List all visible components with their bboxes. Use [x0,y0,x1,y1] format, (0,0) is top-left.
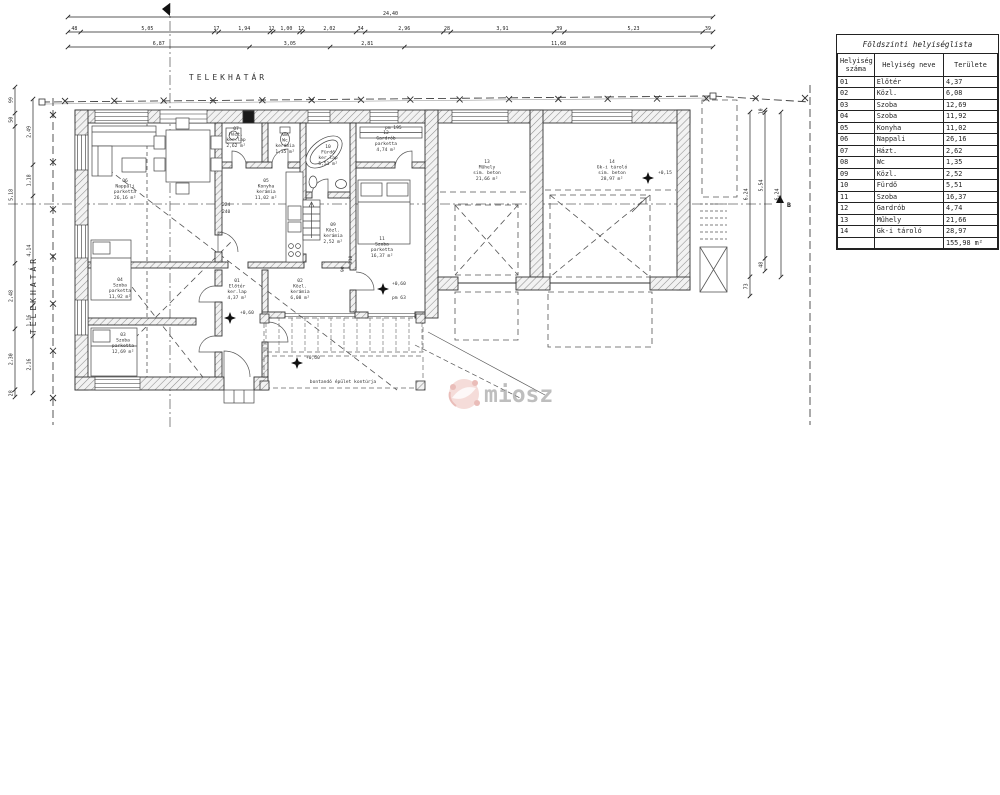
room-label-02: 02 [297,278,303,284]
table-cell: 12,69 [943,99,997,110]
table-cell: 05 [838,122,875,133]
dim-value: 1,00 [280,26,292,32]
room-label-03: 12,69 m² [112,349,134,355]
room-label-05: Konyha [258,184,275,190]
chimney [243,111,254,123]
section-flag-icon [162,3,170,16]
table-cell: Szoba [874,99,943,110]
room-label-11: 16,37 m² [371,253,393,259]
table-cell: 5,51 [943,180,997,191]
dim-pm63: pm 63 [392,295,406,301]
floorplan-sheet: TELEKHATÁR TELEKHATÁR B [0,0,1000,795]
table-row: 04Szoba11,92 [838,111,998,122]
table-cell: Közl. [874,168,943,179]
room-label-01: Előtér [229,283,246,290]
dim-value: 5,54 [759,179,765,191]
dim-value: 2,81 [361,41,373,47]
table-row: 06Nappali26,16 [838,134,998,145]
table-row: 08Wc1,35 [838,157,998,168]
dim-value: 39 [705,26,711,32]
room-label-04: parketta [109,288,131,294]
dim-value: 24,40 [383,11,398,17]
side-extension [700,100,737,292]
dim-value: 6,24 [744,188,750,200]
room-label-09: Közl. [326,228,340,234]
dim-value: 2,49 [27,126,33,138]
table-row: 05Konyha11,02 [838,122,998,133]
col-header-area: Területe [943,54,997,77]
property-boundary: TELEKHATÁR TELEKHATÁR [27,71,810,425]
room-label-06: 06 [122,178,128,184]
room-label-09: 09 [330,222,336,228]
room-label-06: parketta [114,189,136,195]
table-row: 13Műhely21,66 [838,214,998,225]
room-label-10: ker.lap [318,155,338,161]
room-label-13: 13 [484,159,490,165]
dim-value: 6,24 [775,188,781,200]
col-header-room-number: Helyiség száma [838,54,875,77]
table-cell: 6,08 [943,88,997,99]
room-label-11: Szoba [375,242,389,248]
dim-value: 5,18 [9,189,15,201]
room-label-08: 08 [282,132,288,138]
room-label-14: 28,97 m² [601,176,623,182]
table-cell: 09 [838,168,875,179]
table-cell: Házt. [874,145,943,156]
table-cell: 02 [838,88,875,99]
table-row: 09Közl.2,52 [838,168,998,179]
table-row: 10Fürdő5,51 [838,180,998,191]
room-label-13: Műhely [479,165,496,171]
table-cell: Előtér [874,77,943,88]
dim-chain-left-outer: 99505,182,482,3028 [9,85,18,399]
room-label-05: 11,02 m² [255,195,277,201]
room-label-10: 5,51 m² [318,161,337,167]
room-label-13: sim. beton [473,170,501,176]
room-table-body: 01Előtér4,3702Közl.6,0803Szoba12,6904Szo… [838,77,998,249]
stairs [303,200,320,240]
table-cell: 2,52 [943,168,997,179]
terrace-post [260,314,269,323]
terrace-post [416,381,425,390]
elevation-label-garage: +0,15 [658,170,672,176]
room-label-05: kerámia [256,188,276,195]
elevation-star-icon [642,172,654,184]
room-label-09: 2,52 m² [323,239,342,245]
room-label-12: parketta [375,141,397,147]
table-cell: 155,98 m² [943,237,997,248]
dim-value: 2,30 [9,353,15,365]
room-label-07: Házt. [229,131,243,138]
terrace-post [260,381,269,390]
table-cell: 2,62 [943,145,997,156]
room-label-06: 26,16 m² [114,195,136,201]
dim-value: 48 [759,262,765,268]
terrace-post [416,314,425,323]
dim-value: 3,91 [496,26,508,32]
room-label-11: 11 [379,236,385,242]
table-cell: Fürdő [874,180,943,191]
dim-value: 1,94 [238,26,250,32]
elevation-star-icon [291,357,303,369]
table-row: 03Szoba12,69 [838,99,998,110]
table-cell: 01 [838,77,875,88]
room-label-07: 2,62 m² [226,143,245,149]
room-label-03: parketta [112,343,134,349]
table-cell: Gk-i tároló [874,226,943,237]
dim-value: 34 [358,26,364,32]
room-label-14: sim. beton [598,170,626,176]
fence-post [710,93,716,99]
room-table-title: Földszinti helyiséglista [837,35,998,53]
room-label-05: 05 [263,178,269,184]
table-row: 02Közl.6,08 [838,88,998,99]
room-label-03: 03 [120,332,126,338]
table-cell: 07 [838,145,875,156]
dim-value: 1,16 [27,315,33,327]
room-label-14: 14 [609,159,615,165]
dim-value: 50 [9,117,15,123]
dim-value: 11,68 [551,41,566,47]
section-b-label: B [787,201,791,209]
table-cell: Nappali [874,134,943,145]
table-cell: 11,02 [943,122,997,133]
dim-value: 2,16 [27,358,33,370]
table-cell: 14 [838,226,875,237]
room-label-03: Szoba [116,338,130,344]
table-cell: 11 [838,191,875,202]
table-cell: Műhely [874,214,943,225]
table-cell: 16,37 [943,191,997,202]
table-cell: 03 [838,99,875,110]
room-label-12: Gardrób [376,135,396,142]
sofa [92,126,156,146]
dim-value: 28 [9,390,15,396]
room-label-08: kerámia [275,142,295,149]
table-cell: 10 [838,180,875,191]
dim-value: 5,23 [628,26,640,32]
dim-value: 3,05 [284,41,296,47]
elevation-label-entry: +0,60 [240,310,254,316]
dim-chain-right-3: 6,24 [775,110,784,279]
dining-table [166,130,210,182]
dim-value: 1,18 [27,174,33,186]
room-label-07: ker.lap [226,137,246,143]
telekhatar-label-top: TELEKHATÁR [189,71,267,82]
room-table-header-row: Helyiség száma Helyiség neve Területe [838,54,998,77]
table-cell: Wc [874,157,943,168]
table-cell [838,237,875,248]
demolish-note: bontandó épület kontúrja [310,378,377,385]
table-cell: 13 [838,214,875,225]
room-label-08: Wc [282,138,288,144]
elevation-label-hall: +0,60 [392,281,406,287]
elevation-label-terrace: +0,60 [306,355,320,361]
dim-value: 48 [71,26,77,32]
table-cell: 04 [838,111,875,122]
table-cell: 4,74 [943,203,997,214]
room-label-02: kerámia [290,288,310,295]
watermark-logo-icon [449,379,480,409]
dim-value: 17 [213,26,219,32]
room-label-11: parketta [371,247,393,253]
dim-value: 12 [298,26,304,32]
dim-value: 2,96 [398,26,410,32]
elevation-star-icon [224,312,236,324]
room-label-01: ker.lap [227,289,247,295]
dim-value: 4,14 [27,245,33,257]
dim-224: 224 [222,202,231,208]
room-label-09: kerámia [323,232,343,239]
table-cell: 4,37 [943,77,997,88]
table-row: 14Gk-i tároló28,97 [838,226,998,237]
coffee-table [122,158,146,172]
dim-value: 6,87 [153,41,165,47]
furniture [91,118,422,403]
dim-chain-right-2: 105,5448 [759,108,768,273]
dim-value: 10 [759,108,765,114]
table-cell: Konyha [874,122,943,133]
elevation-star-icon [377,283,389,295]
dim-chain-top-total: 24,40 [66,11,715,19]
table-cell: Gardrób [874,203,943,214]
dim-chain-top-detail: 485,05171,94121,00122,02342,96283,91395,… [66,26,715,34]
table-cell [874,237,943,248]
dim-value: 12 [269,26,275,32]
dim-value: 2,02 [323,26,335,32]
room-label-02: 6,08 m² [290,295,309,301]
room-label-14: Gk-i tároló [597,164,628,171]
room-label-10: 10 [325,144,331,150]
garage-annotations [440,190,676,347]
dim-chain-left-inner: 2,491,184,141,162,16 [27,97,36,395]
room-list-table: Földszinti helyiséglista Helyiség száma … [836,34,999,250]
room-label-08: 1,35 m² [275,149,294,155]
table-cell: 28,97 [943,226,997,237]
table-row: 11Szoba16,37 [838,191,998,202]
table-cell: 26,16 [943,134,997,145]
table-row: 07Házt.2,62 [838,145,998,156]
fence-post [39,99,45,105]
table-cell: 21,66 [943,214,997,225]
table-cell: Közl. [874,88,943,99]
table-cell: 06 [838,134,875,145]
kitchen-sink [288,206,301,220]
watermark: miosz [446,374,556,414]
watermark-text: miosz [484,382,553,408]
dim-chain-top-rooms: 6,873,052,8111,68 [66,41,715,49]
room-label-04: 04 [117,277,123,283]
dim-value: 5,05 [141,26,153,32]
room-label-13: 21,66 m² [476,176,498,182]
room-label-12: 4,74 m² [376,147,395,153]
table-total-row: 155,98 m² [838,237,998,248]
table-cell: 1,35 [943,157,997,168]
table-row: 01Előtér4,37 [838,77,998,88]
dim-210: 210 [348,255,354,264]
bath-toilet [309,176,317,188]
room-label-12: 12 [383,130,389,136]
dim-value: 99 [9,97,15,103]
bath-sink [336,180,347,189]
room-label-01: 01 [234,278,240,284]
dim-value: 73 [744,283,750,289]
dim-240: 240 [222,209,231,215]
dim-90: 90 [340,266,346,272]
room-label-01: 4,37 m² [227,295,246,301]
dim-value: 39 [556,26,562,32]
room-label-04: 11,92 m² [109,294,131,300]
col-header-room-name: Helyiség neve [874,54,943,77]
table-cell: Szoba [874,191,943,202]
table-row: 12Gardrób4,74 [838,203,998,214]
room-label-10: Fürdő [321,150,335,156]
dim-value: 2,48 [9,290,15,302]
room-label-02: Közl. [293,284,307,290]
table-cell: 12 [838,203,875,214]
dim-value: 28 [444,26,450,32]
table-cell: 08 [838,157,875,168]
room-label-04: Szoba [113,283,127,289]
room-label-07: 07 [233,126,239,132]
table-cell: Szoba [874,111,943,122]
room-label-06: Nappali [115,184,135,190]
entry-steps [224,390,254,403]
table-cell: 11,92 [943,111,997,122]
